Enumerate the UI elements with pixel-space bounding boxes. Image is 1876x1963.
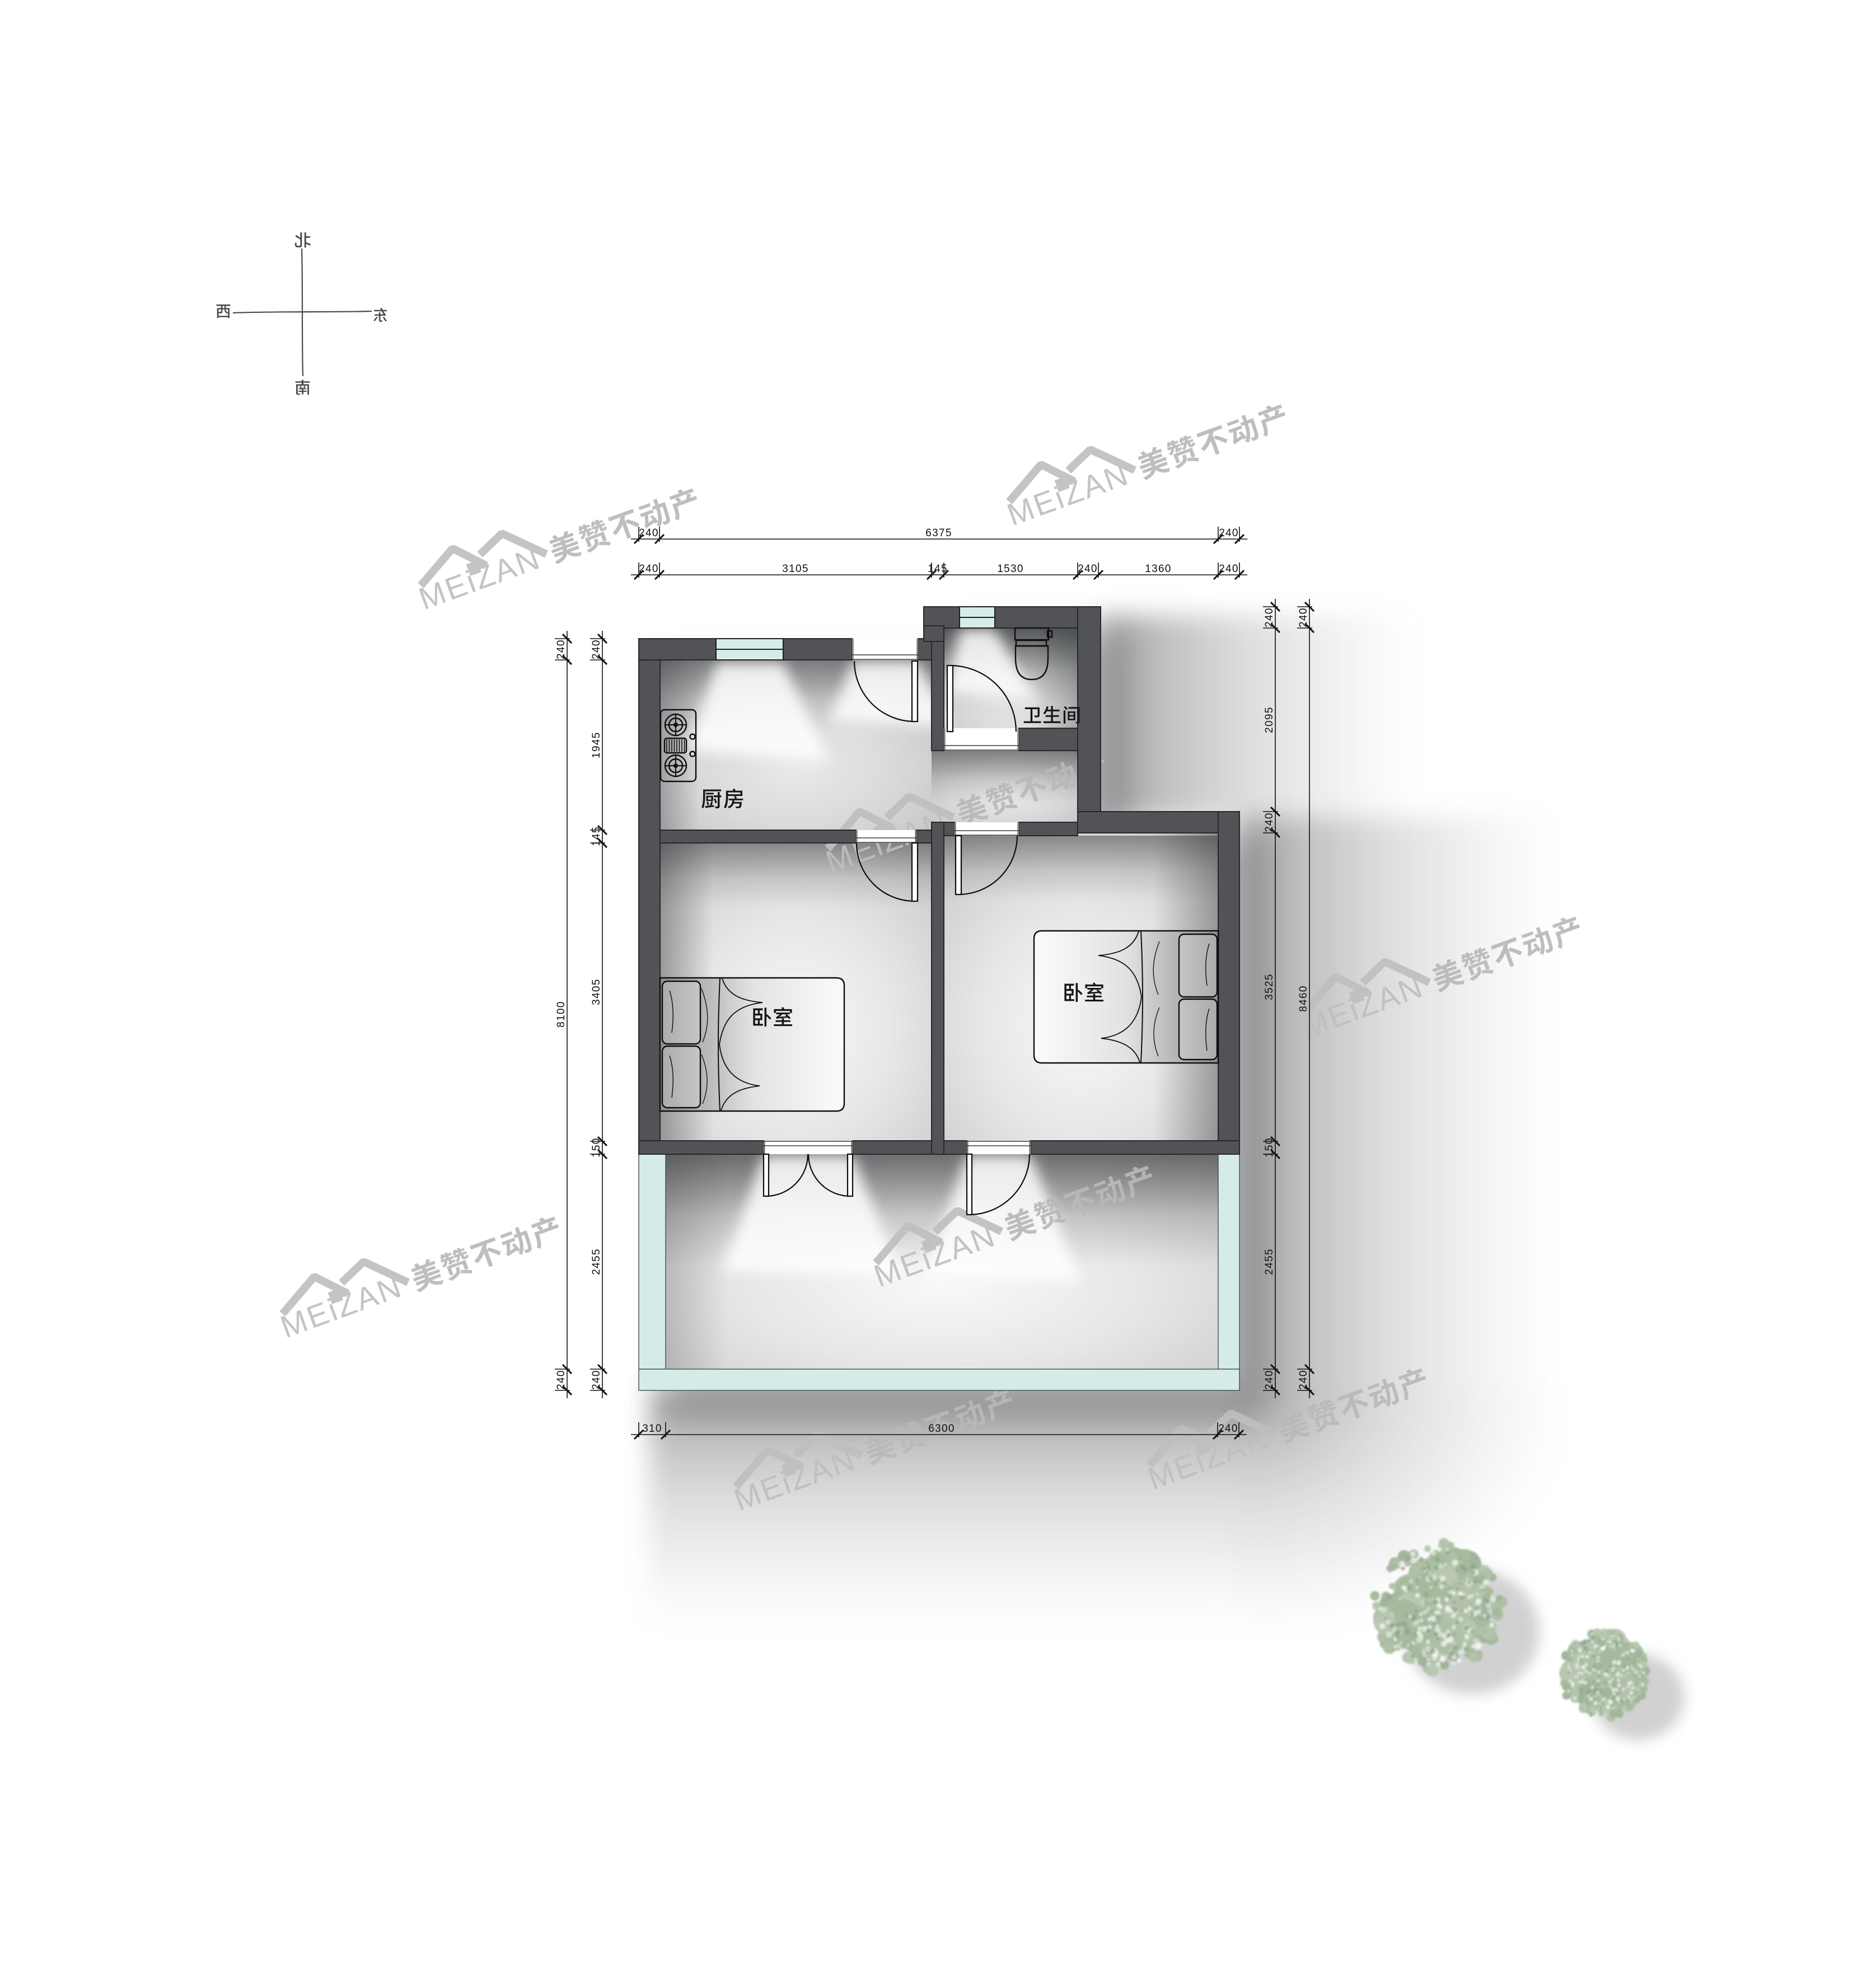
svg-text:150: 150 [1264, 1137, 1275, 1158]
svg-text:240: 240 [1078, 563, 1098, 575]
svg-text:1945: 1945 [591, 732, 602, 758]
svg-text:240: 240 [1219, 563, 1239, 575]
svg-text:145: 145 [928, 563, 948, 575]
svg-text:240: 240 [639, 563, 659, 575]
svg-text:6375: 6375 [925, 527, 952, 539]
svg-text:240: 240 [1298, 1370, 1309, 1390]
svg-text:145: 145 [591, 826, 602, 846]
svg-text:150: 150 [591, 1137, 602, 1158]
svg-text:2455: 2455 [591, 1248, 602, 1275]
svg-text:240: 240 [591, 639, 602, 659]
svg-text:240: 240 [1264, 607, 1275, 627]
svg-text:240: 240 [1264, 1370, 1275, 1390]
svg-text:3525: 3525 [1264, 973, 1275, 1000]
svg-text:3105: 3105 [782, 563, 808, 575]
svg-text:8100: 8100 [555, 1001, 567, 1027]
svg-text:2455: 2455 [1264, 1248, 1275, 1275]
svg-text:240: 240 [555, 1370, 567, 1390]
svg-text:240: 240 [1219, 527, 1239, 539]
svg-text:240: 240 [1298, 607, 1309, 627]
svg-text:3405: 3405 [591, 978, 602, 1005]
svg-text:240: 240 [1264, 812, 1275, 832]
svg-text:1530: 1530 [997, 563, 1023, 575]
svg-text:240: 240 [591, 1370, 602, 1390]
svg-text:310: 310 [642, 1423, 662, 1435]
svg-text:6300: 6300 [928, 1423, 955, 1435]
svg-text:240: 240 [555, 639, 567, 659]
svg-text:1360: 1360 [1145, 563, 1171, 575]
svg-text:240: 240 [639, 527, 659, 539]
svg-text:2095: 2095 [1264, 706, 1275, 733]
svg-text:8460: 8460 [1298, 985, 1309, 1011]
svg-text:240: 240 [1218, 1423, 1238, 1435]
